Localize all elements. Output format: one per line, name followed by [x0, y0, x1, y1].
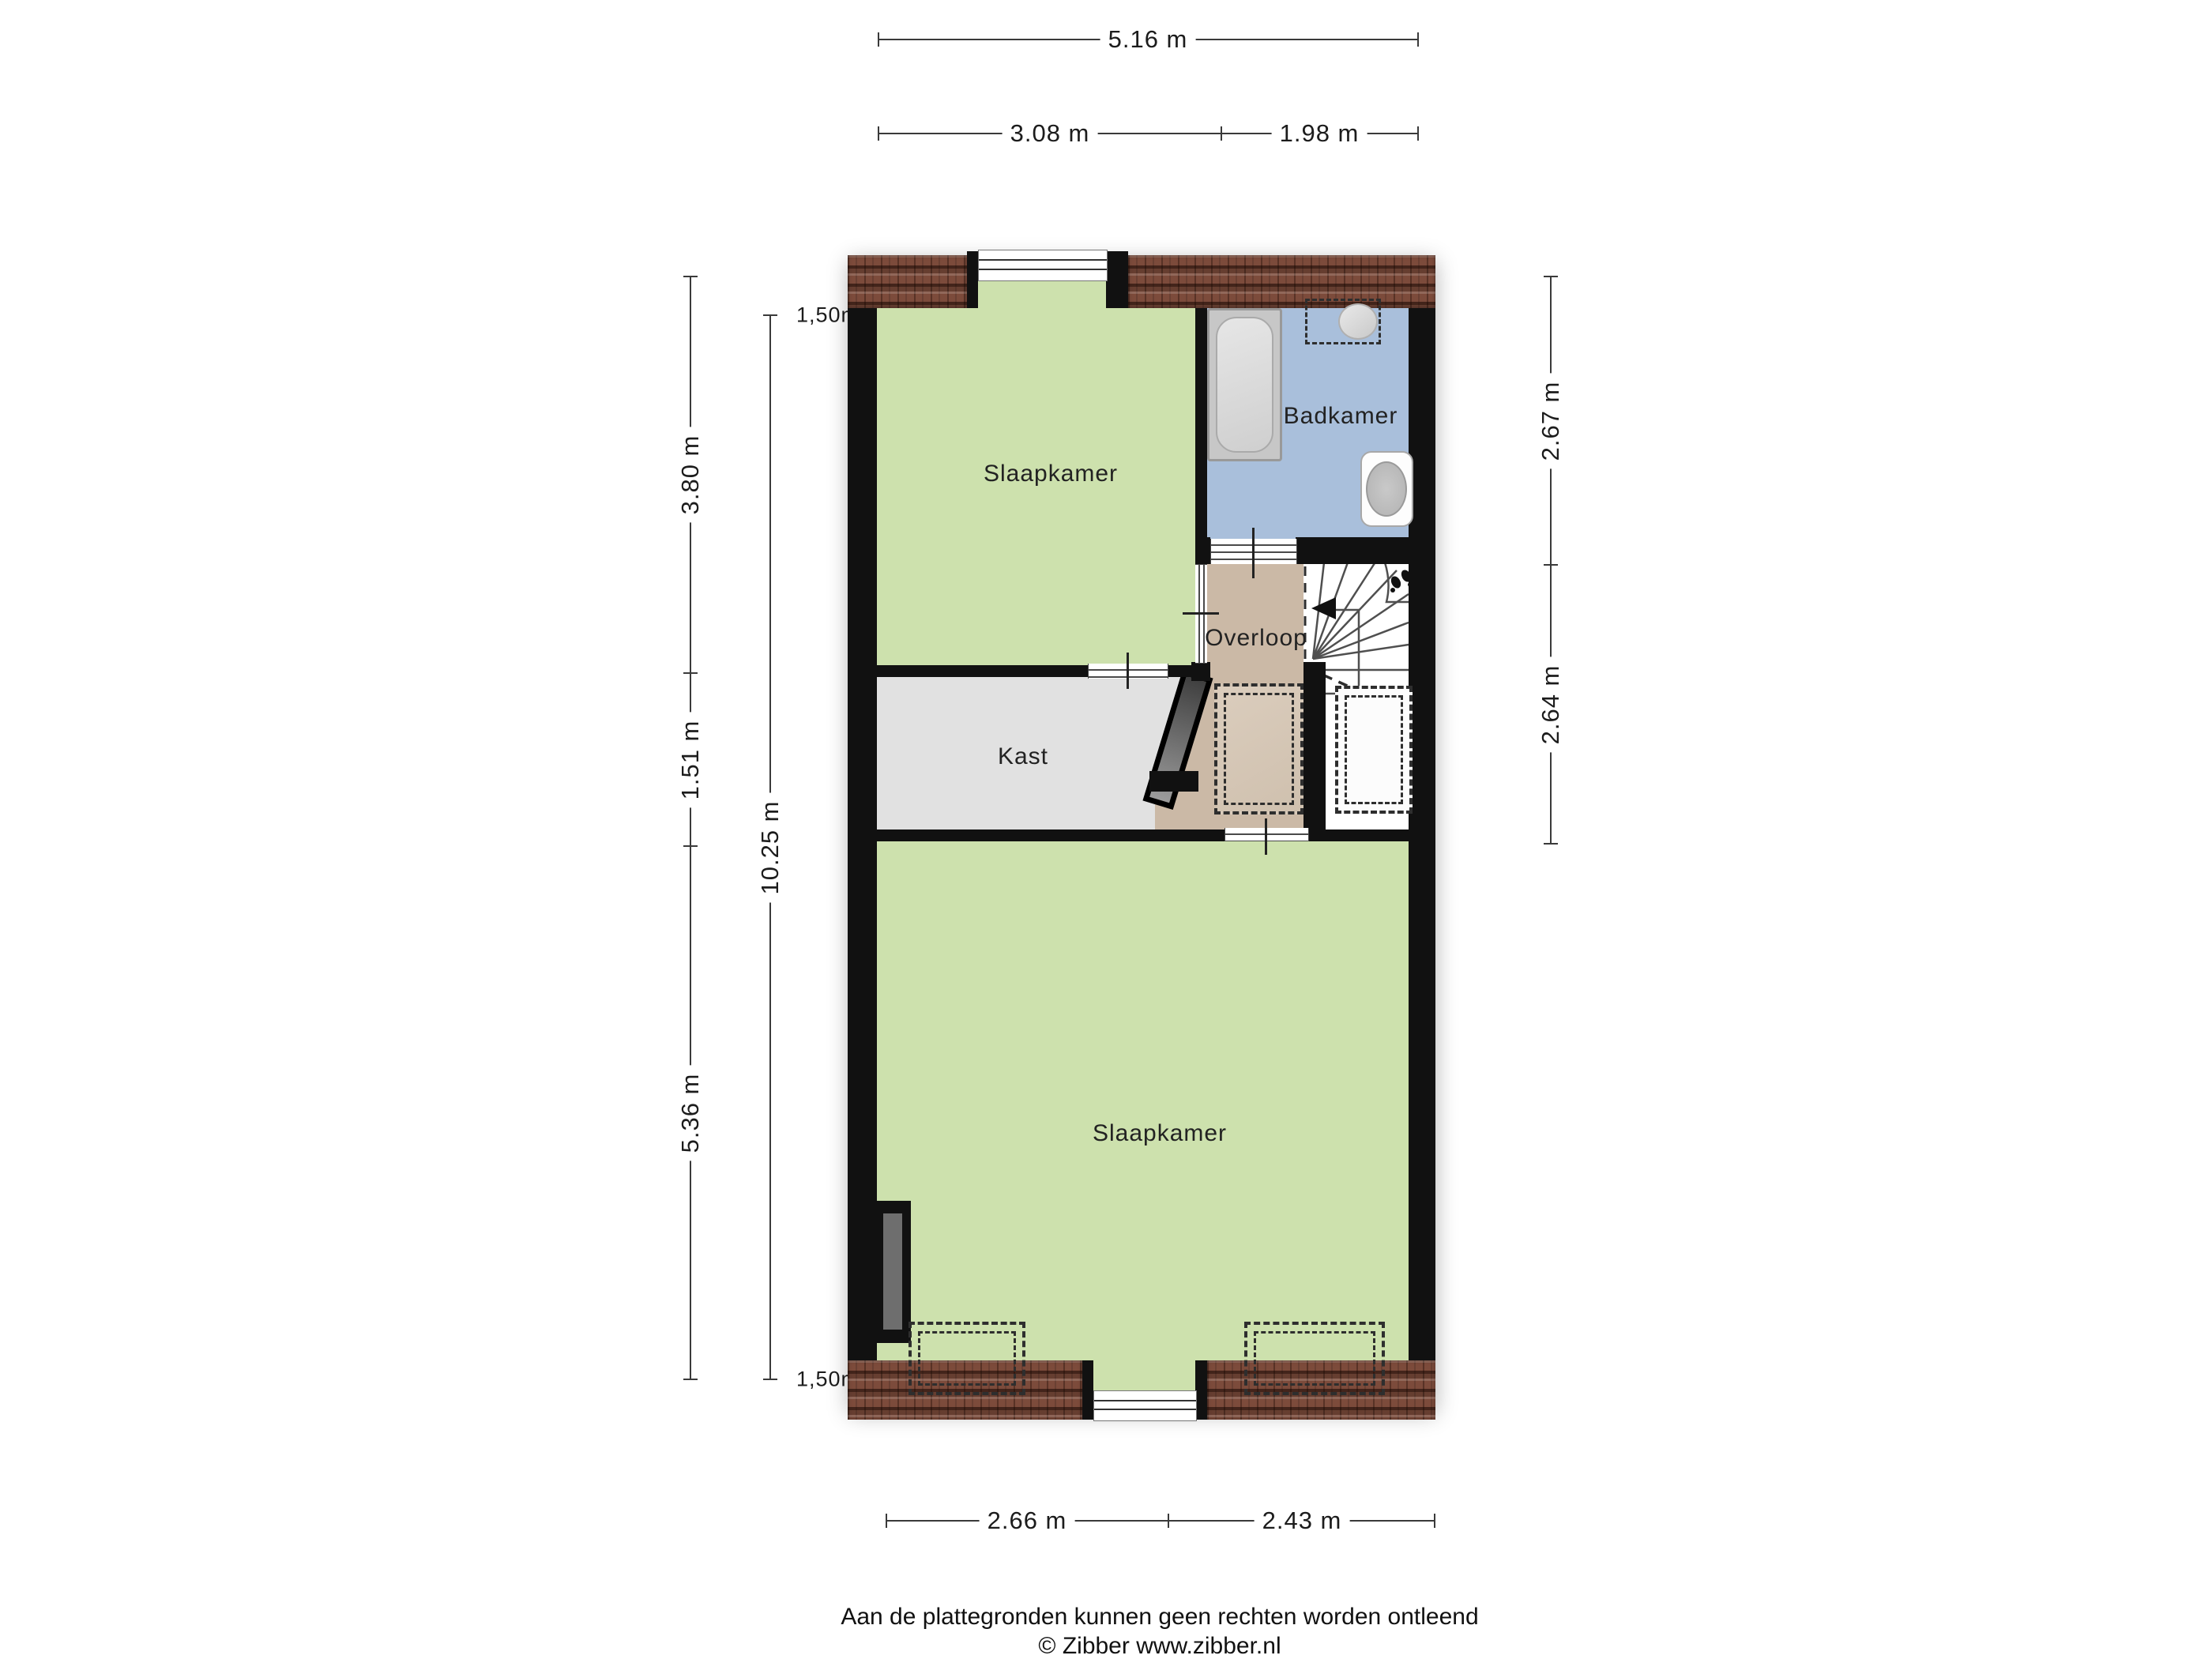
room-label-closet: Kast — [998, 743, 1048, 770]
chimney-flue — [883, 1213, 902, 1330]
dormer-headroom-dashed-right — [1244, 1322, 1385, 1395]
footer-copyright: © Zibber www.zibber.nl — [1038, 1633, 1281, 1659]
stairwell-headroom-dashed — [1335, 686, 1413, 814]
dim-label: 2.66 m — [980, 1505, 1075, 1537]
footer-disclaimer: Aan de plattegronden kunnen geen rechten… — [841, 1604, 1478, 1631]
door-bathroom-swing — [1252, 528, 1255, 578]
wall-middle-bottom-right — [1307, 829, 1435, 841]
room-bedroom-top-dormer — [978, 278, 1106, 313]
landing-headroom-dashed — [1214, 683, 1303, 814]
wall-bathroom-bottom-right — [1296, 537, 1409, 564]
dim-label: 2.43 m — [1255, 1505, 1350, 1537]
toilet — [1338, 303, 1378, 340]
wall-bathroom-bottom-left — [1195, 537, 1210, 564]
wall-bedroom-bathroom — [1195, 304, 1207, 539]
door-bedroom-bottom-swing — [1265, 818, 1267, 855]
window-pier — [967, 251, 978, 308]
dim-label: 2.64 m — [1535, 657, 1567, 753]
wall-stairwell-left — [1303, 662, 1326, 831]
door-closet-swing — [1127, 653, 1129, 689]
room-label-bathroom: Badkamer — [1284, 403, 1398, 430]
room-bedroom-bottom-dormer — [1093, 1360, 1195, 1392]
dim-label: 3.08 m — [1003, 118, 1098, 149]
floorplan-page: 5.16 m 3.08 m 1.98 m 3.80 m 1.51 m 5.36 … — [0, 0, 2212, 1659]
dormer-headroom-dashed-left — [908, 1322, 1025, 1395]
window-pier — [1082, 1360, 1093, 1420]
window-bottom — [1093, 1390, 1197, 1421]
roof-top-left — [848, 255, 967, 308]
window-top — [978, 250, 1108, 281]
room-label-bedroom-bottom: Slaapkamer — [1093, 1120, 1227, 1147]
roof-top-right — [1128, 255, 1435, 308]
wall-middle-bottom-left — [848, 829, 1224, 841]
wall-bedroom-closet-left — [848, 665, 1088, 677]
wall-diagonal-cap — [1149, 771, 1198, 792]
window-pier — [1195, 1360, 1207, 1420]
door-bedroom-top-swing — [1183, 612, 1219, 615]
sink — [1360, 451, 1413, 527]
dim-label: 3.80 m — [675, 427, 706, 523]
room-bedroom-bottom — [877, 841, 1409, 1360]
bathtub — [1207, 308, 1282, 461]
dim-label: 5.36 m — [675, 1066, 706, 1161]
dim-label: 5.16 m — [1100, 24, 1196, 55]
window-pier — [1106, 251, 1128, 308]
room-label-bedroom-top: Slaapkamer — [984, 461, 1118, 487]
dim-label: 10.25 m — [754, 792, 786, 902]
dim-label: 1.51 m — [675, 713, 706, 808]
wall-bedroom-closet-right — [1167, 665, 1195, 677]
room-label-landing: Overloop — [1205, 625, 1307, 652]
dim-label: 1.98 m — [1272, 118, 1367, 149]
dim-label: 2.67 m — [1535, 374, 1567, 469]
